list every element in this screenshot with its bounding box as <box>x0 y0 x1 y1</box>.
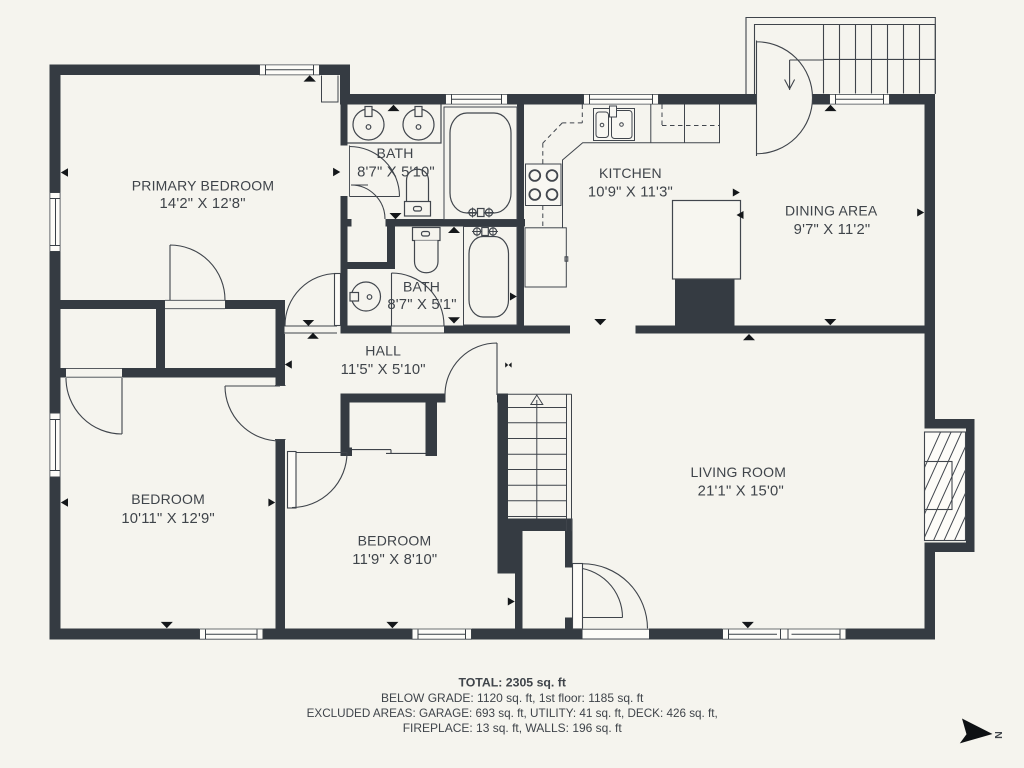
svg-text:PRIMARY BEDROOM: PRIMARY BEDROOM <box>132 177 275 193</box>
svg-text:11'9" X 8'10": 11'9" X 8'10" <box>352 552 437 568</box>
svg-text:9'7" X 11'2": 9'7" X 11'2" <box>794 222 871 238</box>
svg-text:21'1" X 15'0": 21'1" X 15'0" <box>698 484 784 500</box>
svg-text:8'7" X 5'10": 8'7" X 5'10" <box>357 164 435 180</box>
svg-text:BEDROOM: BEDROOM <box>131 491 205 507</box>
svg-text:BELOW GRADE: 1120 sq. ft, 1st: BELOW GRADE: 1120 sq. ft, 1st floor: 118… <box>381 691 644 705</box>
svg-text:HALL: HALL <box>365 342 401 358</box>
svg-text:14'2" X 12'8": 14'2" X 12'8" <box>159 196 245 212</box>
svg-text:N: N <box>992 731 1004 739</box>
svg-text:10'11" X 12'9": 10'11" X 12'9" <box>121 511 215 527</box>
svg-text:LIVING ROOM: LIVING ROOM <box>691 464 787 480</box>
svg-text:KITCHEN: KITCHEN <box>599 165 662 181</box>
svg-text:EXCLUDED AREAS: GARAGE: 693 sq: EXCLUDED AREAS: GARAGE: 693 sq. ft, UTIL… <box>307 707 718 720</box>
svg-text:8'7" X 5'1": 8'7" X 5'1" <box>387 297 456 313</box>
svg-text:TOTAL: 2305 sq. ft: TOTAL: 2305 sq. ft <box>458 676 566 690</box>
svg-text:11'5" X 5'10": 11'5" X 5'10" <box>341 362 426 378</box>
svg-text:DINING AREA: DINING AREA <box>785 202 878 218</box>
svg-text:10'9" X 11'3": 10'9" X 11'3" <box>588 185 673 201</box>
svg-text:FIREPLACE: 13 sq. ft, WALLS: 1: FIREPLACE: 13 sq. ft, WALLS: 196 sq. ft <box>403 721 623 735</box>
svg-text:BATH: BATH <box>376 145 413 161</box>
svg-text:BEDROOM: BEDROOM <box>358 532 432 548</box>
svg-text:BATH: BATH <box>403 279 440 295</box>
